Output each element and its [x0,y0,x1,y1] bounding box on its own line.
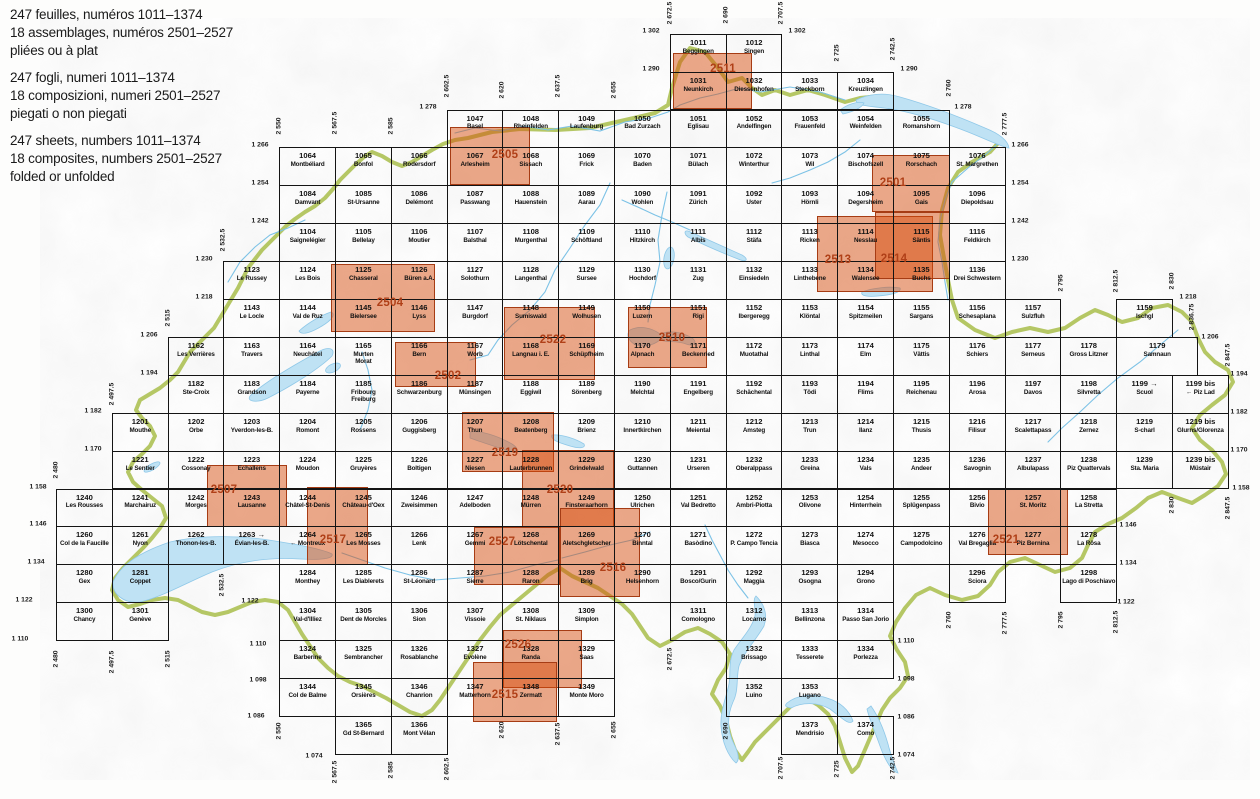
map-sheet-cell: 1308St. Niklaus [502,602,559,641]
map-sheet-cell: 1296Sciora [949,564,1006,603]
map-sheet-cell: 1219 bisGlurns/Glorenza [1172,413,1229,452]
coordinate-label: 2 532.5 [219,574,226,597]
sheet-number: 1196 [969,380,985,388]
sheet-number: 1209 [578,418,595,426]
map-sheet-cell: 1069Frick [558,147,615,186]
sheet-number: 1334 [857,645,874,653]
sheet-name: Sta. Maria [1130,465,1158,472]
sheet-name: Albulapass [1017,465,1049,472]
map-sheet-cell: 1217Scalettapass [1005,413,1062,452]
map-sheet-cell: 1033Steckborn [781,72,838,111]
sheet-name: Boltigen [407,465,431,472]
sheet-number: 1151 [690,304,706,312]
map-sheet-cell: 1124Les Bois [279,261,336,300]
map-sheet-cell: 1226Boltigen [391,451,448,490]
coordinate-label: 1 122 [1117,599,1134,606]
sheet-number: 1308 [522,607,539,615]
coordinate-label: 1 122 [15,597,32,604]
sheet-name: Raron [522,578,539,585]
sheet-name: Brissago [741,654,767,661]
sheet-number: 1089 [578,190,595,198]
sheet-number: 1215 [913,418,930,426]
legend-line: pliées ou à plat [10,42,233,60]
sheet-number: 1324 [299,645,316,653]
sheet-number: 1031 [690,77,707,85]
sheet-name: Basel [467,123,483,130]
coordinate-label: 1 146 [1119,522,1136,529]
map-sheet-cell: 1156Schesaplana [949,299,1006,338]
sheet-number: 1195 [913,380,929,388]
sheet-name: Säntis [912,237,930,244]
sheet-number: 1278 [1080,531,1097,539]
coordinate-label: 1 134 [1119,560,1136,567]
sheet-number: 1129 [578,266,594,274]
sheet-number: 1064 [299,152,316,160]
sheet-number: 1211 [690,418,706,426]
sheet-name: Évian-les-B. [235,540,269,547]
map-sheet-cell: 1262Thonon-les-B. [168,526,225,565]
sheet-number: 1325 [355,645,372,653]
map-sheet-cell: 1134Walensee [837,261,894,300]
sheet-number: 1275 [913,531,930,539]
sheet-name: Scuol [1136,389,1152,396]
sheet-name: Val de Ruz [293,313,323,320]
sheet-name: Luino [746,692,762,699]
sheet-number: 1217 [1025,418,1042,426]
map-sheet-cell: 1092Uster [726,185,783,224]
sheet-name: Zug [693,275,704,282]
map-sheet-cell: 1313Bellinzona [781,602,838,641]
sheet-number: 1163 [244,342,260,350]
map-sheet-cell: 1093Hörnli [781,185,838,224]
map-sheet-cell: 1280Gex [56,564,113,603]
sheet-number: 1256 [969,494,986,502]
map-sheet-cell: 1126Büren a.A. [391,261,448,300]
sheet-name: Wohlen [632,199,654,206]
sheet-number: 1124 [299,266,315,274]
sheet-number: 1070 [634,152,651,160]
sheet-number: 1092 [746,190,763,198]
map-sheet-cell: 1300Chancy [56,602,113,641]
map-sheet-cell: 1194Flims [837,375,894,414]
map-sheet-cell: 1165Murten Morat [335,337,392,376]
sheet-name: Col de Balme [289,692,327,699]
sheet-name: Savognin [964,465,991,472]
sheet-number: 1235 [913,456,930,464]
sheet-number: 1250 [634,494,651,502]
sheet-name: Simplon [575,616,599,623]
map-sheet-cell: 1192Schächental [726,375,783,414]
sheet-number: 1051 [690,115,707,123]
sheet-number: 1109 [578,228,594,236]
map-sheet-cell: 1206Guggisberg [391,413,448,452]
sheet-name: Basòdino [684,540,712,547]
sheet-name: Damvant [295,199,321,206]
sheet-number: 1231 [690,456,707,464]
legend-line: 18 composizioni, numeri 2501–2527 [10,87,233,105]
map-sheet-cell: 1207Thun [447,413,504,452]
sheet-number: 1281 [132,569,149,577]
map-sheet-cell: 1273Biasca [781,526,838,565]
sheet-name: Sargans [909,313,933,320]
sheet-number: 1197 [1025,380,1041,388]
composite-number-label: 2526 [505,639,531,651]
sheet-name: Romont [296,427,319,434]
sheet-number: 1206 [411,418,428,426]
sheet-name: St. Moritz [1020,502,1047,509]
composite-number-label: 2507 [211,484,237,496]
sheet-name: Reichenau [906,389,937,396]
sheet-number: 1213 [801,418,818,426]
sheet-name: Linthebene [794,275,826,282]
map-sheet-cell: 1177Serneus [1005,337,1062,376]
sheet-number: 1076 [969,152,986,160]
coordinate-label: 2 742.5 [890,38,897,61]
map-sheet-cell: 1374Como [837,716,894,755]
sheet-number: 1174 [857,342,873,350]
coordinate-label: 1 254 [251,180,268,187]
sheet-number: 1268 [522,531,539,539]
map-sheet-cell: 1055Romanshorn [893,110,950,149]
map-sheet-cell: 1312Locarno [726,602,783,641]
sheet-number: 1156 [969,304,985,312]
sheet-number: 1304 [299,607,316,615]
sheet-name: ← Piz Lad [1186,389,1215,396]
sheet-number: 1146 [411,304,427,312]
sheet-name: Neunkirch [683,86,712,93]
sheet-name: Stäfa [747,237,762,244]
sheet-name: Wolhusen [572,313,601,320]
coordinate-label: 2 812.5 [1113,270,1120,293]
sheet-name: Aletschgletscher [562,540,610,547]
sheet-number: 1152 [746,304,762,312]
sheet-name: Le Sentier [126,465,155,472]
map-sheet-cell: 1245Château-d'Oex [335,489,392,528]
map-sheet-cell: 1352Luino [726,678,783,717]
sheet-number: 1194 [857,380,873,388]
sheet-name: Zermatt [520,692,542,699]
coordinate-label: 1 290 [642,66,659,73]
sheet-name: Como [857,730,874,737]
composite-number-label: 2511 [710,63,736,75]
coordinate-label: 1 266 [251,142,268,149]
map-sheet-cell: 1211Meiental [670,413,727,452]
sheet-name: Chasseral [349,275,378,282]
sheet-name: Delémont [405,199,433,206]
sheet-name: Langenthal [515,275,547,282]
sheet-name: Ambri-Piotta [736,502,772,509]
coordinate-label: 1 230 [1011,256,1028,263]
coordinate-label: 2 812.5 [1113,611,1120,634]
sheet-name: Kreuzlingen [848,86,882,93]
map-sheet-cell: 1272P. Campo Tencia [726,526,783,565]
map-sheet-cell: 1314Passo San Jorio [837,602,894,641]
map-sheet-cell: 1176Schiers [949,337,1006,376]
coordinate-label: 1 302 [642,28,659,35]
sheet-number: 1216 [969,418,986,426]
sheet-name: Châtel-St-Denis [285,502,330,509]
sheet-name: Innertkirchen [623,427,661,434]
sheet-name: Mendrisio [796,730,824,737]
sheet-number: 1241 [132,494,149,502]
coordinate-label: 2 620 [499,721,506,738]
map-sheet-cell: 1112Stäfa [726,223,783,262]
sheet-name: Sissach [519,161,542,168]
sheet-number: 1093 [801,190,818,198]
map-sheet-cell: 1285Les Diablerets [335,564,392,603]
sheet-number: 1329 [578,645,595,653]
map-sheet-cell: 1152Ibergeregg [726,299,783,338]
sheet-number: 1133 [802,266,818,274]
coordinate-label: 2 497.5 [109,383,116,406]
sheet-number: 1344 [299,683,316,691]
sheet-name: S-charl [1134,427,1154,434]
sheet-number: 1225 [355,456,372,464]
sheet-number: 1311 [690,607,706,615]
sheet-name: Eglisau [688,123,709,130]
sheet-number: 1219 [1136,418,1153,426]
sheet-name: Gex [79,578,90,585]
map-sheet-cell: 1179Samnaun [1116,337,1198,376]
sheet-number: 1032 [746,77,763,85]
sheet-number: 1167 [467,342,483,350]
composite-number-label: 2520 [547,484,573,496]
sheet-number: 1052 [746,115,763,123]
sheet-number: 1047 [467,115,484,123]
sheet-name: Thusis [912,427,931,434]
map-sheet-cell: 1365Gd St-Bernard [335,716,392,755]
sheet-name: Niesen [465,465,485,472]
map-sheet-cell: 1133Linthebene [781,261,838,300]
sheet-name: Hauenstein [515,199,547,206]
sheet-number: 1086 [411,190,428,198]
coordinate-label: 1 146 [29,521,46,528]
sheet-number: 1314 [857,607,874,615]
legend-line: 18 assemblages, numéros 2501–2527 [10,24,233,42]
sheet-name: Beggingen [683,48,714,55]
map-sheet-cell: 1230Guttannen [614,451,671,490]
coordinate-label: 1 278 [419,104,436,111]
sheet-number: 1349 [578,683,595,691]
sheet-number: 1053 [801,115,818,123]
coordinate-label: 2 480 [53,650,60,667]
sheet-number: 1249 [578,494,595,502]
sheet-number: 1108 [523,228,539,236]
sheet-name: Fribourg Freiburg [351,389,376,403]
coordinate-label: 1 110 [250,641,267,648]
sheet-number: 1132 [746,266,762,274]
sheet-name: Feldkirch [964,237,991,244]
coordinate-label: 2 655 [611,81,618,98]
sheet-number: 1267 [467,531,484,539]
sheet-number: 1048 [522,115,539,123]
map-sheet-cell: 1096Diepoldsau [949,185,1006,224]
map-sheet-cell: 1091Zürich [670,185,727,224]
sheet-name: Münsingen [459,389,491,396]
coordinate-label: 1 194 [140,370,157,377]
sheet-name: Drei Schwestern [954,275,1001,282]
map-sheet-cell: 1085St-Ursanne [335,185,392,224]
composite-number-label: 2521 [993,534,1019,546]
sheet-number: 1144 [299,304,315,312]
coordinate-label: 2 637.5 [555,75,562,98]
sheet-number: 1106 [411,228,427,236]
sheet-number: 1173 [802,342,818,350]
map-sheet-cell: 1086Delémont [391,185,448,224]
sheet-number: 1065 [355,152,372,160]
map-sheet-cell: 1225Gruyères [335,451,392,490]
sheet-name: Schächental [736,389,771,396]
sheet-number: 1263 → [238,531,265,539]
map-sheet-cell: 1233Greina [781,451,838,490]
sheet-number: 1230 [634,456,651,464]
sheet-name: Muotathal [740,351,768,358]
sheet-name: Rorschach [906,161,937,168]
sheet-number: 1168 [523,342,539,350]
map-sheet-cell: 1089Aarau [558,185,615,224]
sheet-name: Vättis [913,351,929,358]
sheet-number: 1157 [1025,304,1041,312]
sheet-number: 1170 [634,342,650,350]
sheet-name: Frauenfeld [794,123,825,130]
sheet-number: 1301 [132,607,149,615]
sheet-name: Le Locle [240,313,264,320]
sheet-name: Langnau i. E. [512,351,549,358]
map-sheet-cell: 1235Andeer [893,451,950,490]
sheet-number: 1264 [299,531,316,539]
sheet-name: Schöftland [571,237,602,244]
coordinate-label: 2 847.5 [1225,344,1232,367]
sheet-number: 1252 [746,494,763,502]
sheet-number: 1049 [578,115,595,123]
map-sheet-cell: 1209Brienz [558,413,615,452]
map-sheet-cell: 1189Sörenberg [558,375,615,414]
map-sheet-cell: 1329Saas [558,640,615,679]
map-sheet-cell: 1198Silvretta [1060,375,1117,414]
sheet-name: Lötschental [514,540,548,547]
map-sheet-cell: 1047Basel [447,110,504,149]
sheet-number: 1069 [578,152,595,160]
sheet-number: 1251 [690,494,707,502]
map-sheet-cell: 1263 →Évian-les-B. [223,526,280,565]
sheet-name: Passo San Jorio [842,616,889,623]
sheet-name: Finsteraarhorn [565,502,607,509]
sheet-number: 1207 [467,418,484,426]
sheet-name: Echallens [238,465,266,472]
composite-number-label: 2514 [881,253,907,265]
map-sheet-cell: 1324Barberine [279,640,336,679]
sheet-number: 1199 → [1131,380,1157,388]
sheet-number: 1087 [467,190,484,198]
sheet-name: Ischgl [1136,313,1153,320]
sheet-name: Yverdon-les-B. [231,427,273,434]
sheet-name: Travers [241,351,262,358]
sheet-name: Zürich [689,199,707,206]
map-sheet-cell: 1111Albis [670,223,727,262]
sheet-name: Schiers [966,351,988,358]
sheet-name: Grono [857,578,875,585]
sheet-number: 1258 [1080,494,1097,502]
sheet-number: 1345 [355,683,372,691]
map-sheet-cell: 1266Lenk [391,526,448,565]
sheet-name: Guttannen [627,465,657,472]
coordinate-label: 1 158 [1232,485,1249,492]
map-sheet-cell: 1157Sulzfluh [1005,299,1062,338]
sheet-number: 1123 [244,266,260,274]
coordinate-label: 2 602.5 [444,758,451,781]
composite-number-label: 2517 [320,534,346,546]
coordinate-label: 2 707.5 [778,757,785,780]
sheet-number: 1125 [355,266,371,274]
coordinate-label: 2 830 [1169,496,1176,513]
sheet-name: Hochdorf [629,275,656,282]
composite-number-label: 2522 [540,334,566,346]
sheet-name: Baden [633,161,652,168]
sheet-number: 1179 [1149,342,1165,350]
map-sheet-cell: 1110Hitzkirch [614,223,671,262]
sheet-number: 1289 [578,569,595,577]
sheet-name: Mont Vélan [403,730,435,737]
sheet-name: Ulrichen [630,502,654,509]
coordinate-label: 2 672.5 [667,2,674,25]
sheet-name: Flims [858,389,874,396]
map-sheet-cell: 1131Zug [670,261,727,300]
coordinate-label: 2 760 [946,611,953,628]
map-sheet-cell: 1231Urseren [670,451,727,490]
sheet-number: 1332 [746,645,763,653]
sheet-number: 1068 [522,152,539,160]
sheet-number: 1084 [299,190,316,198]
map-sheet-cell: 1327Evolène [447,640,504,679]
map-sheet-cell: 1214Ilanz [837,413,894,452]
coordinate-label: 1 266 [1011,142,1028,149]
sheet-number: 1284 [299,569,316,577]
sheet-number: 1198 [1081,380,1097,388]
sheet-name: Les Mosses [346,540,380,547]
map-sheet-cell: 1147Burgdorf [447,299,504,338]
legend-line: 18 composites, numbers 2501–2527 [10,150,233,168]
map-sheet-cell: 1237Albulapass [1005,451,1062,490]
map-sheet-cell: 1252Ambri-Piotta [726,489,783,528]
sheet-number: 1280 [76,569,93,577]
sheet-number: 1187 [467,380,483,388]
map-sheet-cell: 1326Rosablanche [391,640,448,679]
sheet-number: 1182 [188,380,204,388]
map-sheet-cell: 1066Rodersdorf [391,147,448,186]
map-sheet-cell: 1210Innertkirchen [614,413,671,452]
map-sheet-cell: 1232Oberalppass [726,451,783,490]
sheet-number: 1148 [523,304,539,312]
sheet-name: Aarau [578,199,595,206]
map-sheet-cell: 1275Campodolcino [893,526,950,565]
map-sheet-cell: 1332Brissago [726,640,783,679]
sheet-name: Les Diablerets [343,578,384,585]
sheet-name: Randa [522,654,541,661]
sheet-name: Locarno [742,616,766,623]
sheet-number: 1189 [578,380,594,388]
sheet-number: 1186 [411,380,427,388]
map-sheet-cell: 1153Klöntal [781,299,838,338]
sheet-number: 1034 [857,77,874,85]
map-sheet-cell: 1244Châtel-St-Denis [279,489,336,528]
sheet-number: 1193 [802,380,818,388]
sheet-number: 1162 [188,342,204,350]
sheet-number: 1239 bis [1185,456,1215,464]
sheet-name: Walensee [852,275,880,282]
sheet-name: Andelfingen [737,123,772,130]
sheet-number: 1112 [746,228,762,236]
map-sheet-cell: 1065Bonfol [335,147,392,186]
